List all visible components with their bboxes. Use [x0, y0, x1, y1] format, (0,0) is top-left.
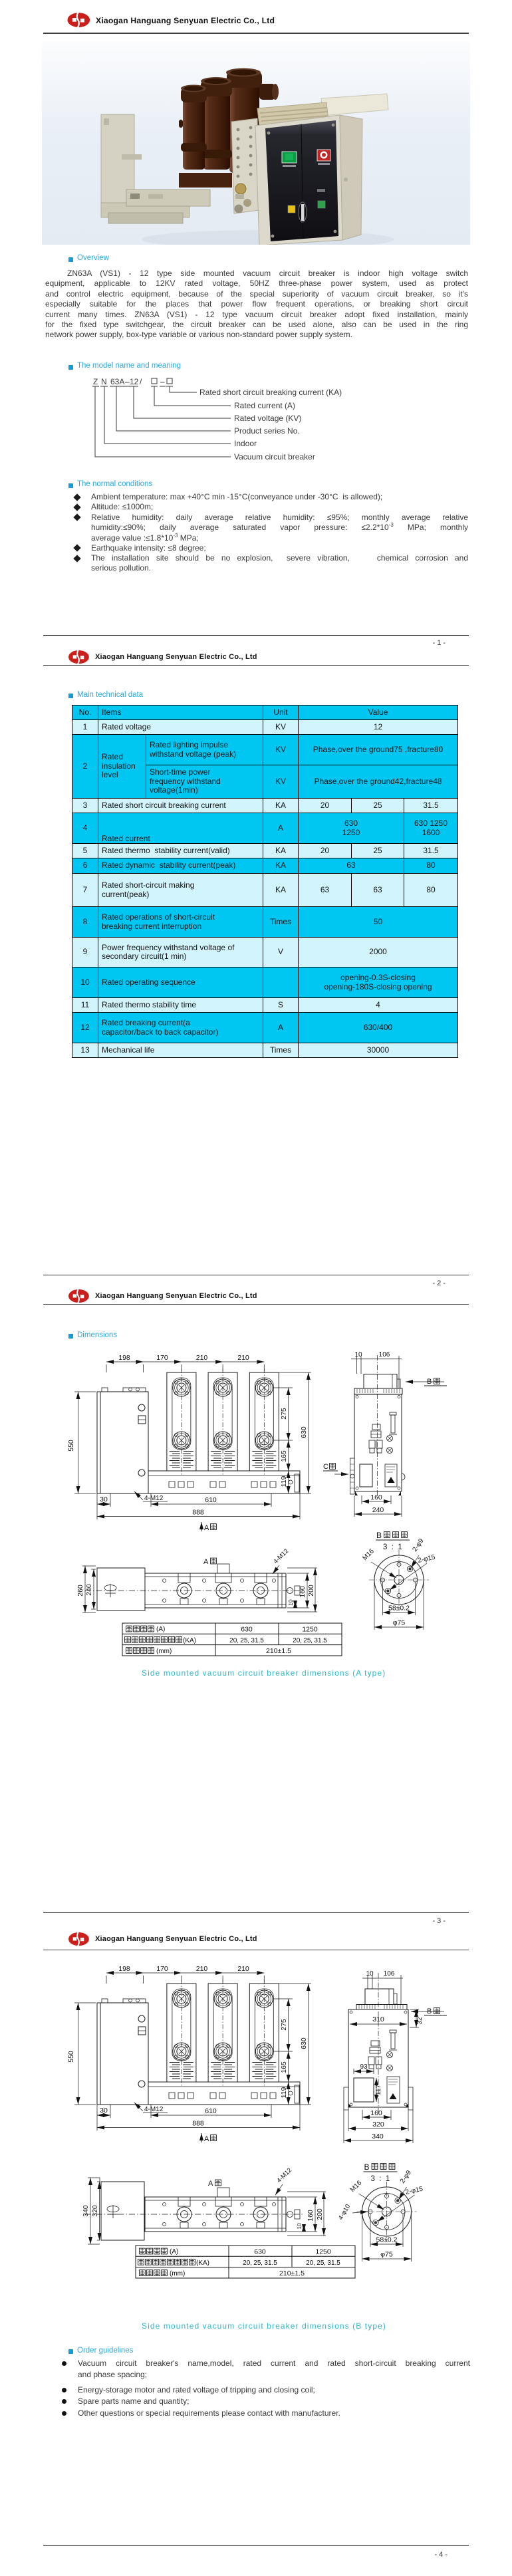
svg-text:Rated short circuit breaking c: Rated short circuit breaking current (KA… [199, 388, 342, 397]
svg-text:A: A [203, 1558, 209, 1566]
svg-text:Indoor: Indoor [234, 439, 257, 448]
svg-text:12: 12 [130, 377, 139, 386]
svg-text:240: 240 [85, 1584, 93, 1596]
svg-text:N: N [101, 377, 107, 386]
svg-text:106: 106 [384, 1970, 395, 1978]
svg-text:–: – [125, 377, 130, 386]
svg-text:10: 10 [296, 2223, 303, 2230]
svg-text:Rated voltage (KV): Rated voltage (KV) [234, 414, 301, 423]
svg-text:10: 10 [366, 1970, 374, 1978]
svg-text:32: 32 [416, 2017, 424, 2025]
svg-text:4-φ10: 4-φ10 [337, 2203, 352, 2221]
svg-text:4-M12: 4-M12 [275, 2166, 293, 2184]
svg-text:160: 160 [370, 2109, 382, 2117]
svg-text:4-M12: 4-M12 [272, 1547, 290, 1565]
svg-text:10: 10 [287, 1599, 294, 1606]
svg-text:63A: 63A [110, 377, 124, 386]
svg-text:200: 200 [316, 2208, 324, 2220]
svg-text:117: 117 [375, 2085, 382, 2095]
svg-text:Product series No.: Product series No. [234, 426, 300, 436]
svg-text:310: 310 [372, 2015, 384, 2023]
svg-text:A: A [208, 2180, 213, 2188]
svg-text:320: 320 [91, 2205, 99, 2217]
svg-text:Rated current (A): Rated current (A) [234, 401, 295, 410]
svg-text:160: 160 [299, 1586, 307, 1598]
svg-text:Vacuum circuit breaker: Vacuum circuit breaker [234, 452, 315, 461]
svg-text:160: 160 [307, 2210, 315, 2222]
svg-text:340: 340 [372, 2132, 384, 2140]
svg-text:340: 340 [82, 2205, 90, 2217]
svg-text:260: 260 [76, 1585, 84, 1597]
svg-text:Z: Z [93, 377, 98, 386]
svg-text:200: 200 [307, 1585, 315, 1597]
svg-text:/: / [140, 377, 142, 386]
svg-text:–: – [160, 377, 165, 386]
svg-text:93: 93 [360, 2063, 368, 2071]
svg-text:320: 320 [372, 2121, 384, 2128]
